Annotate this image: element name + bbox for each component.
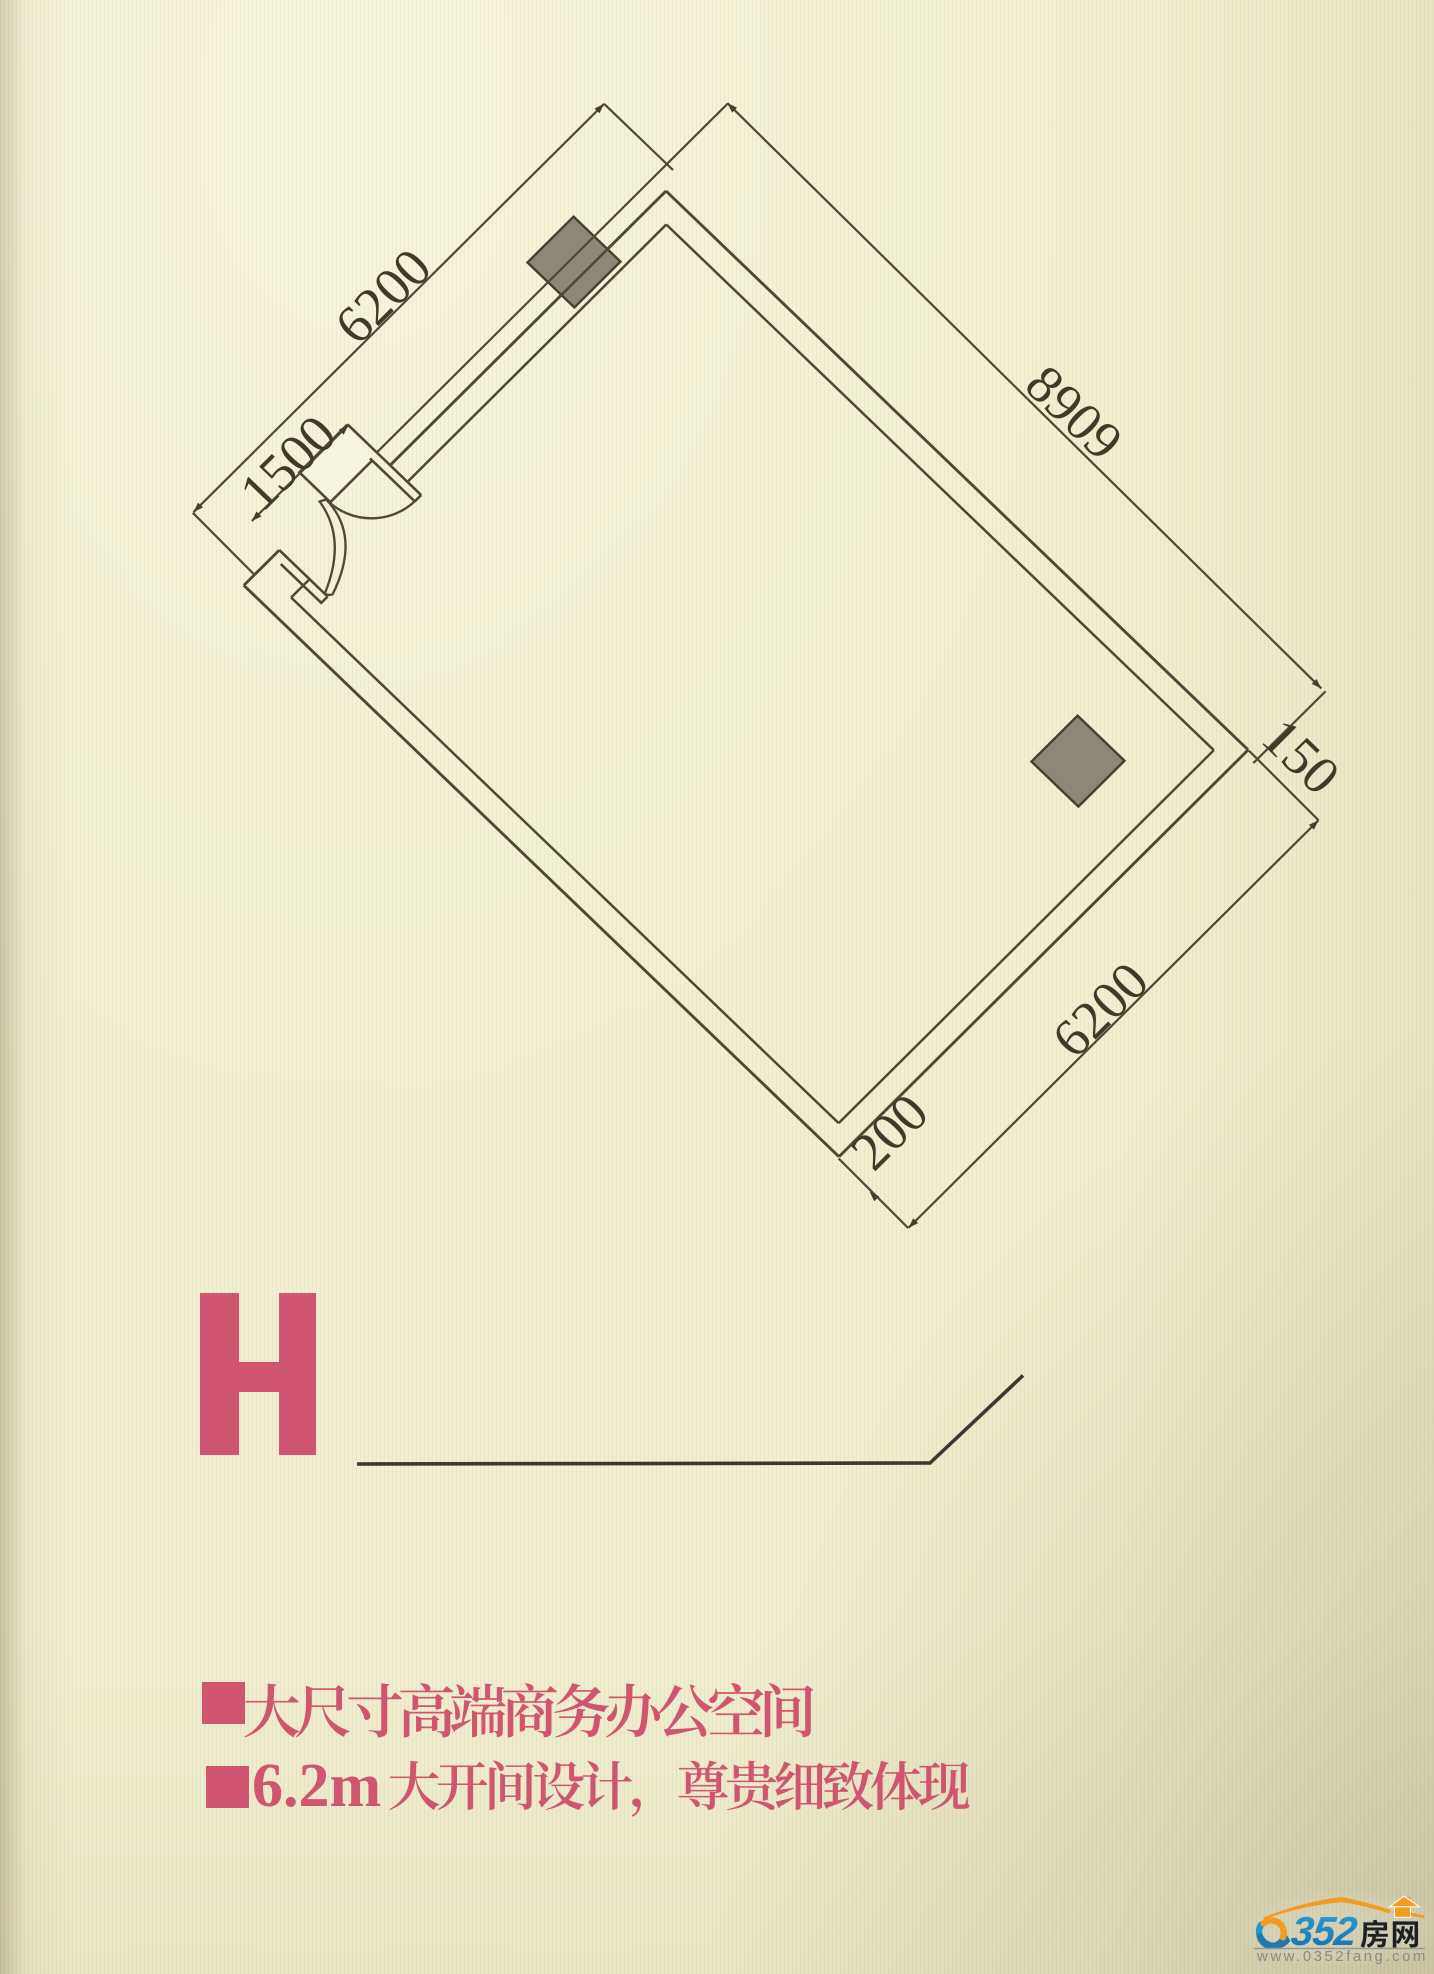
svg-text:6.2m: 6.2m xyxy=(252,1752,381,1820)
svg-text:www.0352fang.com: www.0352fang.com xyxy=(1256,1948,1428,1965)
